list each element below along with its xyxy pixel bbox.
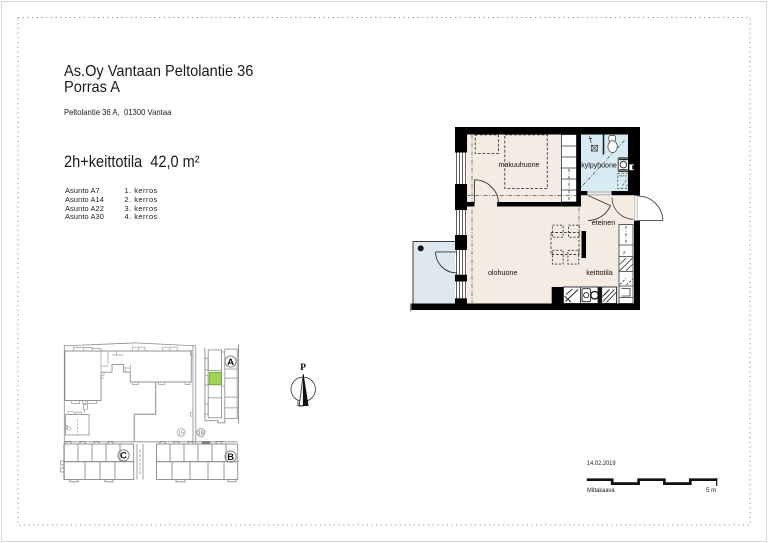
svg-text:15: 15 bbox=[178, 431, 184, 437]
svg-text:16: 16 bbox=[198, 431, 204, 437]
svg-text:keittotila: keittotila bbox=[586, 268, 613, 277]
svg-text:jk: jk bbox=[622, 250, 626, 254]
svg-text:C: C bbox=[120, 450, 127, 461]
svg-text:eteinen: eteinen bbox=[592, 218, 616, 227]
svg-text:olohuone: olohuone bbox=[488, 268, 518, 277]
svg-text:B: B bbox=[227, 451, 234, 462]
svg-text:A: A bbox=[227, 356, 234, 367]
svg-text:makuuhuone: makuuhuone bbox=[499, 160, 540, 169]
svg-text:kylpyhuone: kylpyhuone bbox=[581, 161, 617, 170]
svg-text:P: P bbox=[300, 362, 306, 373]
svg-text:varaus: varaus bbox=[618, 174, 628, 178]
